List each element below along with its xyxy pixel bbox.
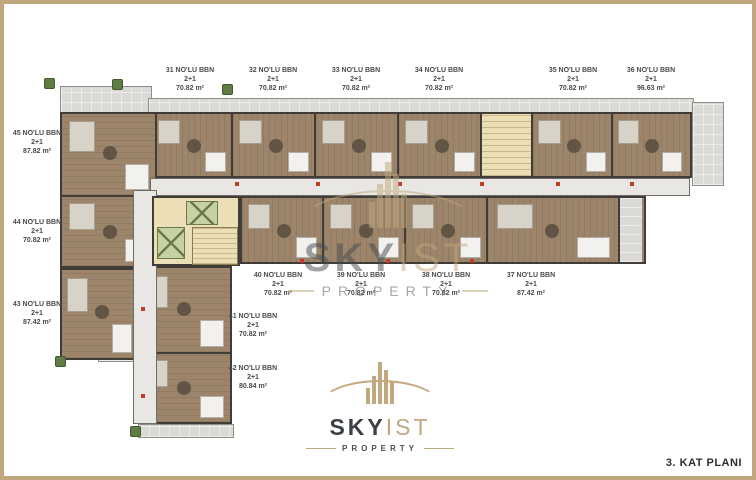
door-marker (630, 182, 634, 186)
unit-label-31: 31 NO'LU BBN2+170.82 m² (145, 66, 235, 93)
dining-table-icon (567, 139, 581, 153)
floor-plan-page: 31 NO'LU BBN2+170.82 m² 32 NO'LU BBN2+17… (0, 0, 756, 480)
dining-table-icon (441, 224, 455, 238)
dining-table-icon (545, 224, 559, 238)
logo-brand-name: SKYIST (300, 414, 460, 441)
door-marker (141, 394, 145, 398)
unit-label-38: 38 NO'LU BBN2+170.82 m² (401, 271, 491, 298)
logo-brand-subtitle: PROPERTY (300, 444, 460, 453)
brand-sky: SKY (329, 414, 385, 440)
unit-label-34: 34 NO'LU BBN2+170.82 m² (394, 66, 484, 93)
tree-icon (112, 79, 123, 90)
brand-ist: IST (386, 414, 431, 440)
brand-logo: SKYIST PROPERTY (300, 362, 460, 453)
unit-label-42: 42 NO'LU BBN2+180.84 m² (213, 364, 293, 391)
unit-room-36 (611, 114, 686, 176)
divider-line (306, 448, 336, 450)
brand-property: PROPERTY (342, 444, 418, 453)
door-marker (316, 182, 320, 186)
unit-room-39 (322, 198, 404, 262)
tree-icon (55, 356, 66, 367)
door-marker (235, 182, 239, 186)
dining-table-icon (435, 139, 449, 153)
door-marker (556, 182, 560, 186)
dining-table-icon (177, 302, 191, 316)
dining-table-icon (352, 139, 366, 153)
unit-room-38 (404, 198, 486, 262)
dining-table-icon (187, 139, 201, 153)
stair-core-right (480, 114, 531, 176)
unit-room-45 (62, 114, 155, 195)
dining-table-icon (645, 139, 659, 153)
door-marker (480, 182, 484, 186)
dining-table-icon (177, 381, 191, 395)
floor-plan-title: 3. KAT PLANI (666, 457, 742, 469)
unit-label-32: 32 NO'LU BBN2+170.82 m² (228, 66, 318, 93)
elevator-icon (157, 227, 185, 259)
tree-icon (44, 78, 55, 89)
unit-label-43: 43 NO'LU BBN2+187.42 m² (0, 300, 74, 327)
unit-label-33: 33 NO'LU BBN2+170.82 m² (311, 66, 401, 93)
unit-room-33 (314, 114, 397, 176)
unit-label-45: 45 NO'LU BBN2+187.82 m² (0, 129, 74, 156)
door-marker (470, 259, 474, 263)
top-wing (150, 112, 692, 178)
corridor-horizontal (150, 178, 690, 196)
unit-room-40 (242, 198, 322, 262)
dining-table-icon (103, 146, 117, 160)
unit-label-35: 35 NO'LU BBN2+170.82 m² (528, 66, 618, 93)
unit-label-44: 44 NO'LU BBN2+170.82 m² (0, 218, 74, 245)
tree-icon (130, 426, 141, 437)
door-marker (300, 259, 304, 263)
dining-table-icon (269, 139, 283, 153)
unit-label-40: 40 NO'LU BBN2+170.82 m² (233, 271, 323, 298)
unit-room-32 (231, 114, 314, 176)
divider-line (424, 448, 454, 450)
dining-table-icon (359, 224, 373, 238)
door-marker (398, 182, 402, 186)
unit-room-37 (486, 198, 618, 262)
unit-room-31 (152, 114, 231, 176)
middle-wing (240, 196, 646, 264)
balcony-unit37-side (618, 198, 642, 262)
unit-label-41: 41 NO'LU BBN2+170.82 m² (213, 312, 293, 339)
unit-label-36: 36 NO'LU BBN2+196.63 m² (606, 66, 696, 93)
unit-room-35 (531, 114, 611, 176)
door-marker (386, 259, 390, 263)
dining-table-icon (95, 305, 109, 319)
stairs-icon (192, 227, 238, 265)
service-core-left (152, 196, 240, 266)
door-marker (141, 307, 145, 311)
balcony-right-side (692, 102, 724, 186)
dining-table-icon (103, 225, 117, 239)
unit-label-37: 37 NO'LU BBN2+187.42 m² (486, 271, 576, 298)
unit-label-39: 39 NO'LU BBN2+170.82 m² (316, 271, 406, 298)
balcony-bottom-strip (138, 424, 234, 438)
dining-table-icon (277, 224, 291, 238)
unit-room-34 (397, 114, 480, 176)
balcony-left-wing-top (60, 86, 152, 114)
elevator-icon (186, 201, 218, 225)
